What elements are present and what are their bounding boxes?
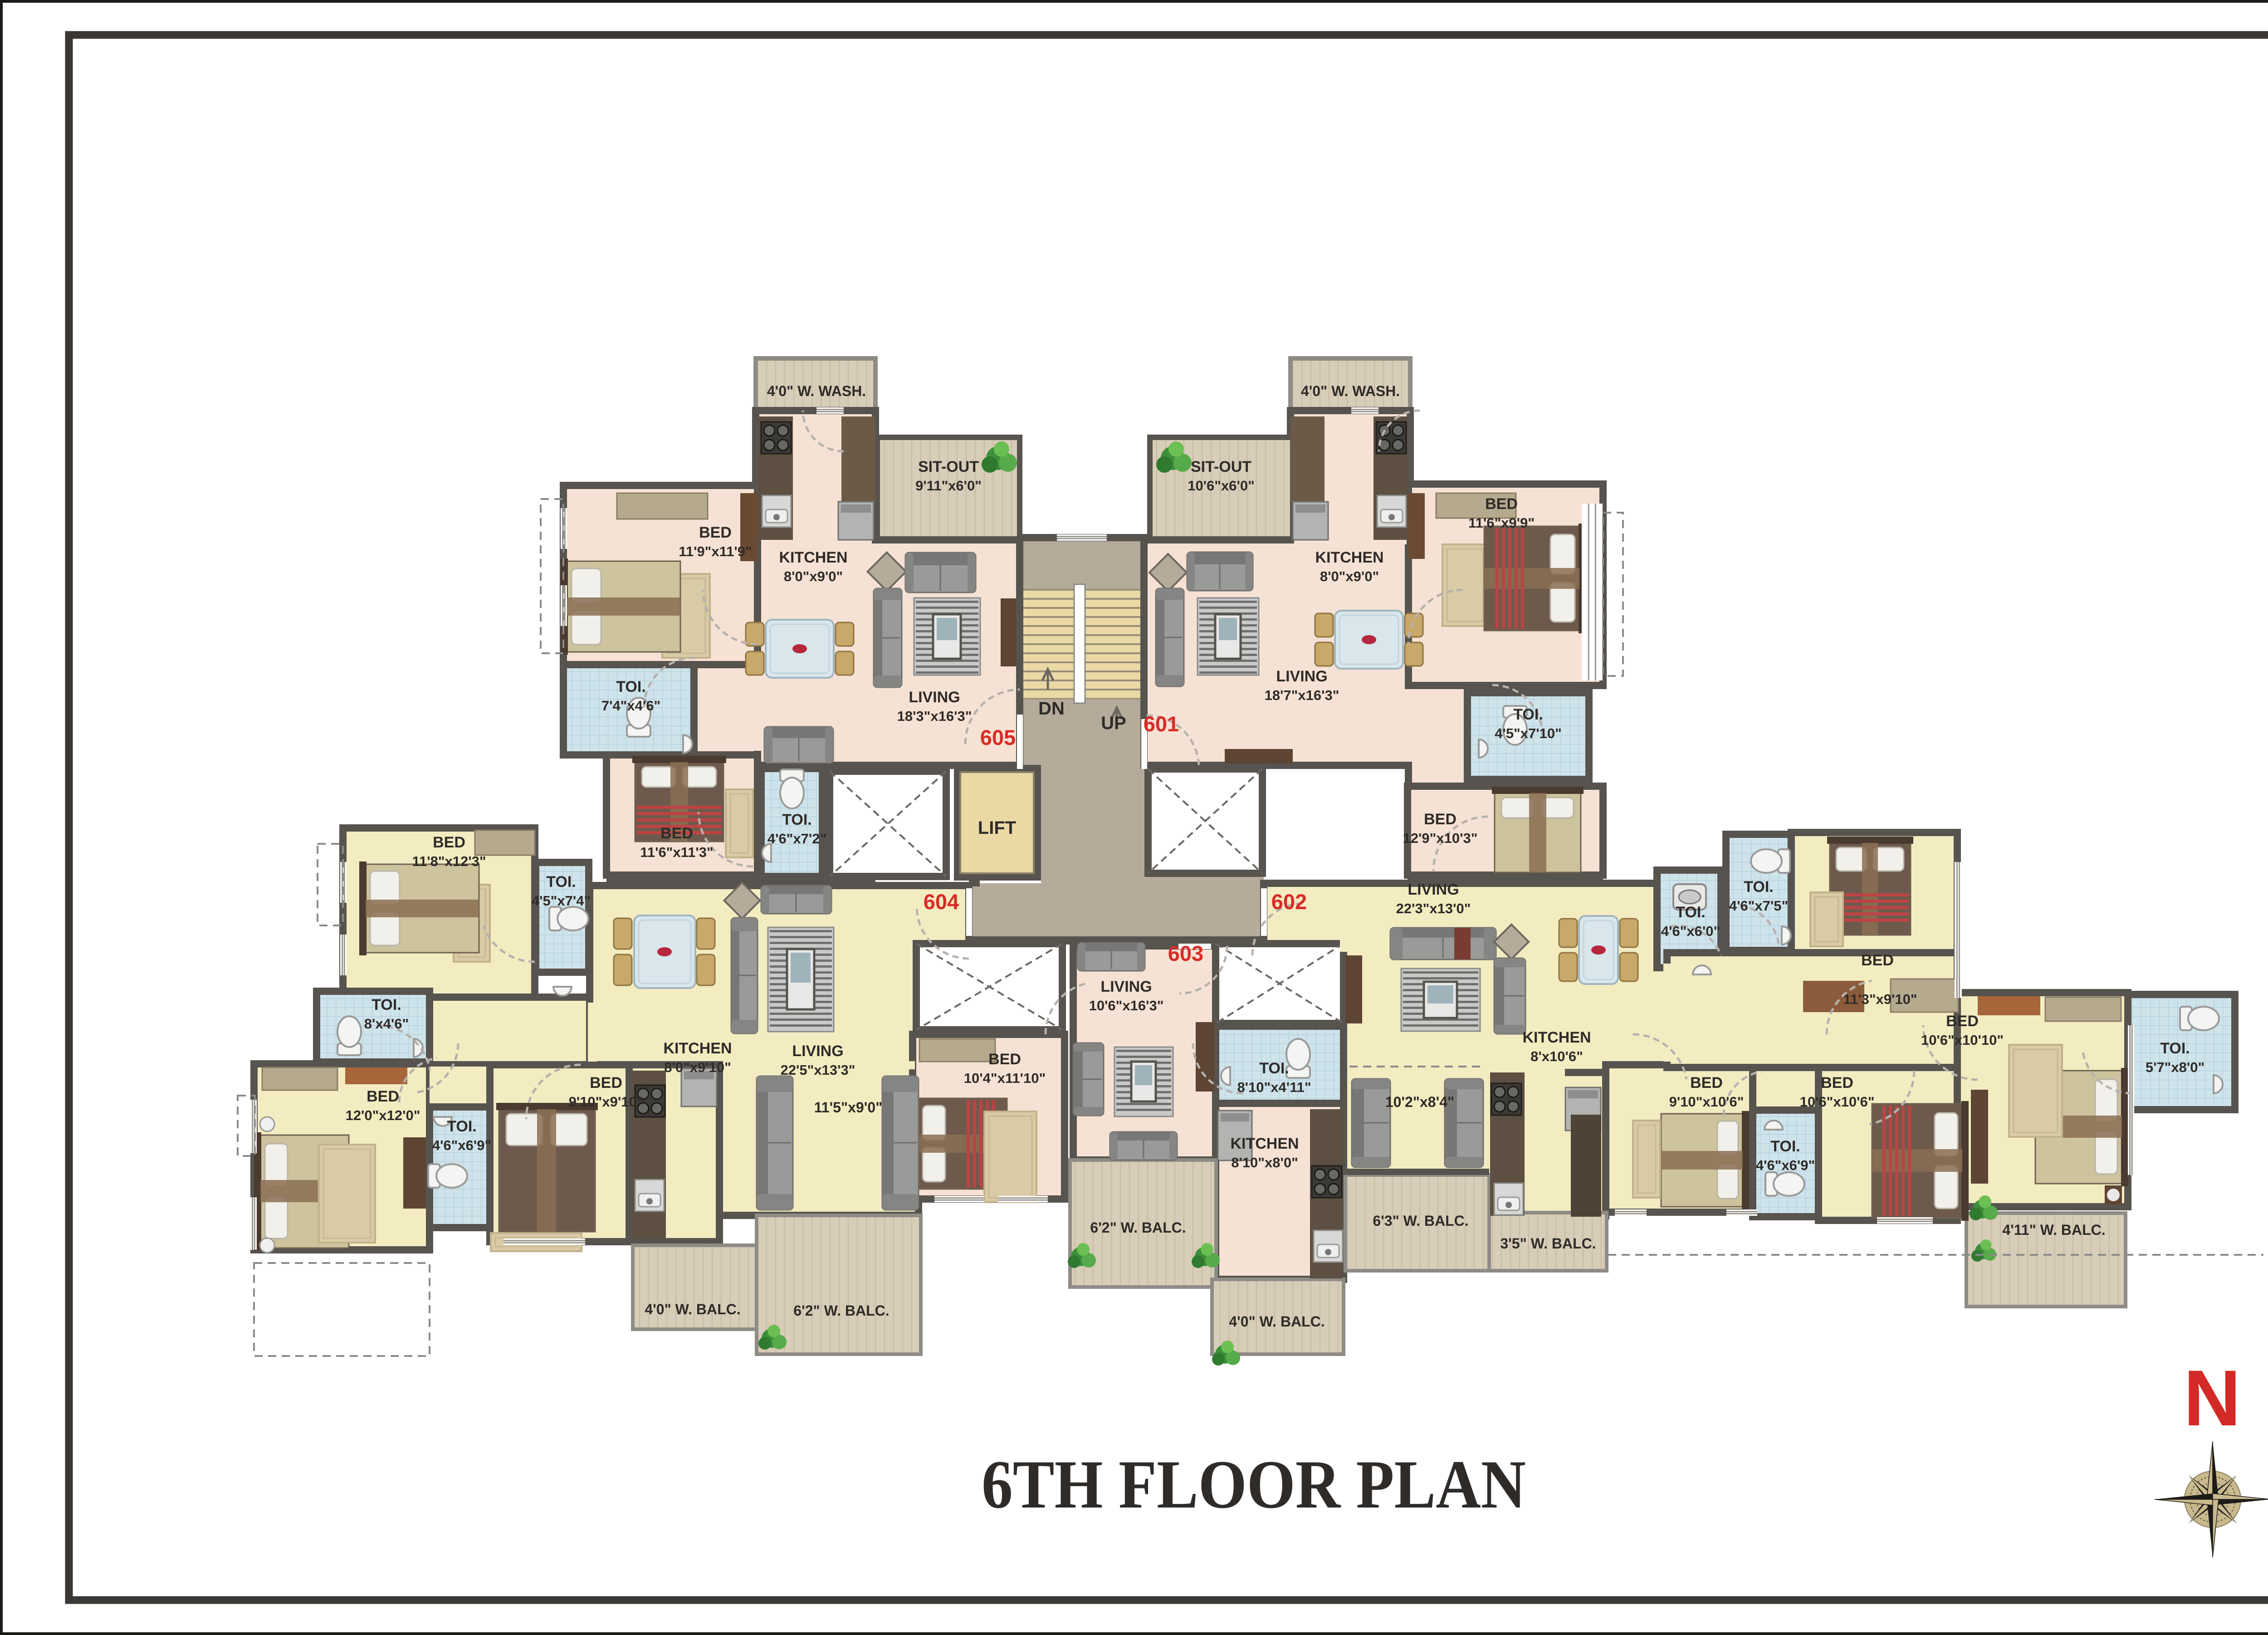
svg-text:18'7"x16'3": 18'7"x16'3" xyxy=(1265,687,1339,703)
svg-text:TOI.: TOI. xyxy=(1259,1060,1289,1077)
svg-text:6'2" W. BALC.: 6'2" W. BALC. xyxy=(1090,1219,1186,1236)
svg-text:10'2"x8'4": 10'2"x8'4" xyxy=(1385,1094,1454,1110)
svg-text:8'x10'6": 8'x10'6" xyxy=(1530,1048,1583,1064)
svg-text:LIVING: LIVING xyxy=(1100,978,1152,995)
svg-text:11'5"x9'0": 11'5"x9'0" xyxy=(814,1099,883,1116)
svg-text:4'0" W. WASH.: 4'0" W. WASH. xyxy=(1301,383,1400,399)
svg-text:22'3"x13'0": 22'3"x13'0" xyxy=(1396,901,1471,916)
svg-text:LIVING: LIVING xyxy=(1276,668,1327,685)
svg-text:4'6"x7'5": 4'6"x7'5" xyxy=(1729,898,1788,914)
svg-text:LIVING: LIVING xyxy=(909,689,960,706)
svg-text:BED: BED xyxy=(988,1051,1021,1068)
svg-text:TOI.: TOI. xyxy=(1676,904,1706,921)
svg-text:3'5" W. BALC.: 3'5" W. BALC. xyxy=(1500,1235,1596,1252)
svg-text:N: N xyxy=(2184,1354,2241,1443)
svg-text:BED: BED xyxy=(699,524,732,541)
svg-text:602: 602 xyxy=(1271,890,1307,914)
svg-text:11'6"x9'9": 11'6"x9'9" xyxy=(1468,515,1535,531)
svg-text:BED: BED xyxy=(660,825,693,842)
svg-text:8'10"x8'0": 8'10"x8'0" xyxy=(1231,1155,1298,1170)
svg-text:SIT-OUT: SIT-OUT xyxy=(1191,458,1251,475)
svg-text:6'2" W. BALC.: 6'2" W. BALC. xyxy=(793,1302,889,1319)
svg-text:4'0" W. BALC.: 4'0" W. BALC. xyxy=(1229,1313,1325,1330)
svg-text:4'6"x6'0": 4'6"x6'0" xyxy=(1661,923,1720,939)
svg-text:4'11" W. BALC.: 4'11" W. BALC. xyxy=(2002,1222,2105,1238)
svg-text:11'9"x11'9": 11'9"x11'9" xyxy=(679,543,752,559)
svg-text:4'5"x7'4": 4'5"x7'4" xyxy=(532,893,591,909)
svg-text:9'10"x10'6": 9'10"x10'6" xyxy=(1669,1094,1744,1110)
svg-text:11'6"x11'3": 11'6"x11'3" xyxy=(640,844,713,860)
svg-text:BED: BED xyxy=(1690,1074,1723,1092)
svg-text:KITCHEN: KITCHEN xyxy=(1522,1029,1591,1046)
svg-text:6TH FLOOR PLAN: 6TH FLOOR PLAN xyxy=(982,1446,1526,1522)
svg-text:12'9"x10'3": 12'9"x10'3" xyxy=(1403,830,1478,846)
svg-text:10'6"x10'10": 10'6"x10'10" xyxy=(1921,1032,2004,1048)
svg-text:8'x4'6": 8'x4'6" xyxy=(364,1016,409,1032)
svg-text:11'3"x9'10": 11'3"x9'10" xyxy=(1843,991,1917,1007)
svg-text:SIT-OUT: SIT-OUT xyxy=(918,458,979,475)
svg-text:BED: BED xyxy=(590,1074,622,1092)
svg-text:4'6"x7'2": 4'6"x7'2" xyxy=(767,831,826,847)
svg-text:10'4"x11'10": 10'4"x11'10" xyxy=(964,1070,1046,1086)
svg-text:LIFT: LIFT xyxy=(978,818,1016,838)
svg-text:BED: BED xyxy=(1424,811,1457,828)
svg-text:LIVING: LIVING xyxy=(792,1043,843,1060)
svg-text:TOI.: TOI. xyxy=(447,1118,477,1135)
svg-text:4'0" W. BALC.: 4'0" W. BALC. xyxy=(645,1301,740,1317)
svg-text:8'0"x9'0": 8'0"x9'0" xyxy=(784,568,843,584)
svg-text:KITCHEN: KITCHEN xyxy=(779,549,847,566)
svg-text:TOI.: TOI. xyxy=(782,811,812,828)
svg-text:605: 605 xyxy=(980,725,1016,749)
svg-text:BED: BED xyxy=(1485,495,1518,513)
svg-text:10'6"x16'3": 10'6"x16'3" xyxy=(1089,998,1164,1013)
svg-text:KITCHEN: KITCHEN xyxy=(1230,1135,1299,1152)
svg-text:4'6"x6'9": 4'6"x6'9" xyxy=(1756,1157,1815,1173)
svg-text:TOI.: TOI. xyxy=(371,996,401,1013)
svg-text:4'0" W. WASH.: 4'0" W. WASH. xyxy=(767,383,866,399)
svg-text:604: 604 xyxy=(924,890,959,914)
svg-text:BED: BED xyxy=(1821,1074,1853,1092)
svg-text:10'6"x10'6": 10'6"x10'6" xyxy=(1800,1094,1875,1110)
svg-text:KITCHEN: KITCHEN xyxy=(1315,549,1383,566)
svg-text:BED: BED xyxy=(1946,1013,1979,1030)
svg-text:BED: BED xyxy=(1861,952,1894,969)
svg-text:9'10"x9'10": 9'10"x9'10" xyxy=(569,1094,644,1110)
svg-text:BED: BED xyxy=(367,1088,399,1105)
svg-text:4'5"x7'10": 4'5"x7'10" xyxy=(1495,725,1562,741)
svg-text:KITCHEN: KITCHEN xyxy=(663,1040,732,1057)
svg-text:8'0"x9'0": 8'0"x9'0" xyxy=(1320,568,1379,584)
svg-text:TOI.: TOI. xyxy=(546,873,576,891)
svg-text:TOI.: TOI. xyxy=(1744,878,1774,896)
svg-text:603: 603 xyxy=(1168,941,1203,965)
svg-text:8'0"x9'10": 8'0"x9'10" xyxy=(664,1059,731,1075)
svg-text:TOI.: TOI. xyxy=(2160,1040,2190,1057)
svg-text:DN: DN xyxy=(1038,699,1065,719)
svg-text:9'11"x6'0": 9'11"x6'0" xyxy=(915,478,982,494)
svg-text:TOI.: TOI. xyxy=(1770,1138,1800,1155)
svg-text:4'6"x6'9": 4'6"x6'9" xyxy=(432,1137,491,1153)
svg-text:LIVING: LIVING xyxy=(1408,881,1459,898)
svg-text:6'3" W. BALC.: 6'3" W. BALC. xyxy=(1373,1213,1468,1229)
svg-text:8'10"x4'11": 8'10"x4'11" xyxy=(1237,1079,1311,1095)
svg-text:BED: BED xyxy=(433,834,465,851)
svg-text:5'7"x8'0": 5'7"x8'0" xyxy=(2146,1059,2204,1075)
svg-text:11'8"x12'3": 11'8"x12'3" xyxy=(412,853,486,869)
svg-text:18'3"x16'3": 18'3"x16'3" xyxy=(897,708,972,724)
svg-text:12'0"x12'0": 12'0"x12'0" xyxy=(346,1107,420,1123)
svg-text:601: 601 xyxy=(1144,712,1179,736)
svg-text:TOI.: TOI. xyxy=(1513,706,1543,723)
svg-text:22'5"x13'3": 22'5"x13'3" xyxy=(781,1062,855,1078)
svg-text:7'4"x4'6": 7'4"x4'6" xyxy=(601,698,660,714)
svg-text:UP: UP xyxy=(1101,713,1126,733)
svg-text:TOI.: TOI. xyxy=(616,678,646,695)
svg-text:10'6"x6'0": 10'6"x6'0" xyxy=(1188,478,1255,494)
